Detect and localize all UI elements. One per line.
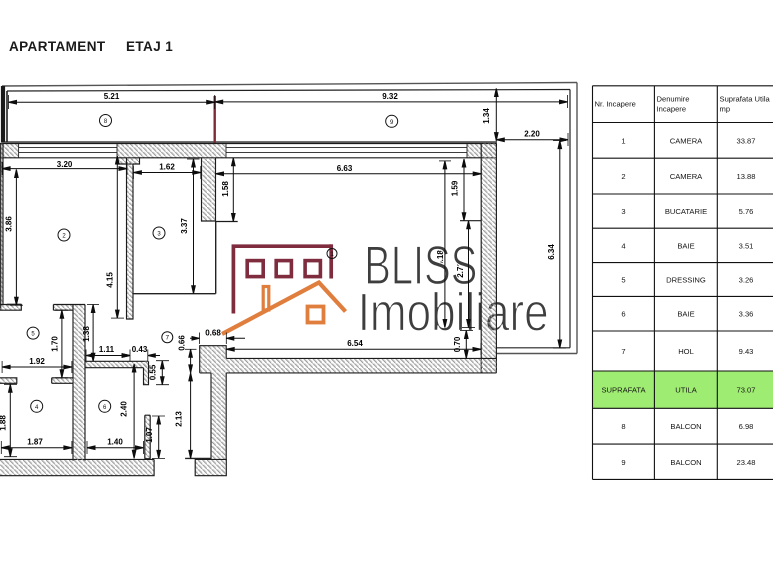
svg-text:23.48: 23.48	[736, 458, 755, 467]
svg-text:1: 1	[621, 136, 625, 145]
svg-text:5.21: 5.21	[104, 92, 120, 101]
svg-text:9.32: 9.32	[382, 92, 398, 101]
svg-text:ETAJ 1: ETAJ 1	[126, 39, 173, 54]
svg-text:Incapere: Incapere	[657, 105, 687, 114]
svg-text:6.98: 6.98	[739, 422, 754, 431]
svg-text:6.54: 6.54	[347, 339, 363, 348]
svg-text:1.87: 1.87	[27, 438, 43, 447]
svg-text:Suprafata Utila: Suprafata Utila	[720, 95, 771, 104]
svg-text:1.38: 1.38	[82, 326, 91, 342]
svg-text:0.43: 0.43	[132, 345, 148, 354]
svg-text:2.13: 2.13	[175, 411, 184, 427]
svg-text:9: 9	[621, 458, 625, 467]
svg-text:1.62: 1.62	[159, 163, 175, 172]
svg-text:0.70: 0.70	[453, 336, 462, 352]
svg-text:5.76: 5.76	[739, 207, 754, 216]
svg-text:Denumire: Denumire	[657, 95, 690, 104]
svg-text:3.36: 3.36	[739, 310, 754, 319]
svg-text:BAIE: BAIE	[677, 241, 694, 250]
svg-text:APARTAMENT: APARTAMENT	[9, 39, 106, 54]
svg-text:BUCATARIE: BUCATARIE	[665, 207, 707, 216]
svg-text:HOL: HOL	[678, 347, 694, 356]
svg-text:BAIE: BAIE	[677, 310, 694, 319]
svg-text:UTILA: UTILA	[675, 386, 697, 395]
svg-text:13.88: 13.88	[736, 172, 755, 181]
svg-text:1.59: 1.59	[451, 180, 460, 196]
svg-text:1.92: 1.92	[29, 357, 45, 366]
svg-text:8: 8	[621, 422, 625, 431]
svg-text:0.55: 0.55	[149, 364, 158, 380]
svg-text:3.51: 3.51	[739, 241, 754, 250]
svg-text:BALCON: BALCON	[670, 458, 701, 467]
svg-text:1.58: 1.58	[221, 181, 230, 197]
svg-text:1.11: 1.11	[99, 345, 115, 354]
svg-text:2.40: 2.40	[120, 401, 129, 417]
svg-text:2: 2	[621, 172, 625, 181]
svg-text:CAMERA: CAMERA	[670, 172, 703, 181]
svg-text:6.63: 6.63	[337, 164, 353, 173]
svg-text:6.34: 6.34	[547, 244, 556, 260]
svg-text:4: 4	[621, 241, 625, 250]
svg-text:2.20: 2.20	[524, 130, 540, 139]
svg-text:3.86: 3.86	[5, 216, 14, 232]
svg-text:1: 1	[330, 251, 334, 258]
svg-text:9.43: 9.43	[739, 347, 754, 356]
svg-text:3.26: 3.26	[739, 276, 754, 285]
svg-text:SUPRAFATA: SUPRAFATA	[601, 386, 646, 395]
svg-text:1.07: 1.07	[145, 427, 154, 443]
svg-text:0.68: 0.68	[205, 329, 221, 338]
svg-text:1.34: 1.34	[482, 108, 491, 124]
svg-text:7: 7	[165, 335, 169, 342]
svg-text:1.40: 1.40	[107, 438, 123, 447]
svg-text:0.66: 0.66	[178, 335, 187, 351]
svg-text:mp: mp	[720, 105, 731, 114]
svg-text:6: 6	[621, 310, 625, 319]
svg-text:4.15: 4.15	[106, 272, 115, 288]
svg-text:3.20: 3.20	[57, 160, 73, 169]
svg-text:73.07: 73.07	[736, 386, 755, 395]
svg-text:3.37: 3.37	[180, 218, 189, 234]
svg-text:DRESSING: DRESSING	[666, 276, 706, 285]
svg-text:33.87: 33.87	[736, 136, 755, 145]
svg-text:CAMERA: CAMERA	[670, 136, 703, 145]
svg-text:1.70: 1.70	[51, 336, 60, 352]
svg-text:Imobiliare: Imobiliare	[358, 283, 549, 343]
svg-text:7: 7	[621, 347, 625, 356]
svg-text:5: 5	[621, 276, 625, 285]
svg-text:1.88: 1.88	[0, 415, 8, 431]
svg-text:3: 3	[621, 207, 625, 216]
svg-text:BALCON: BALCON	[670, 422, 701, 431]
svg-text:Nr. Incapere: Nr. Incapere	[595, 100, 636, 109]
